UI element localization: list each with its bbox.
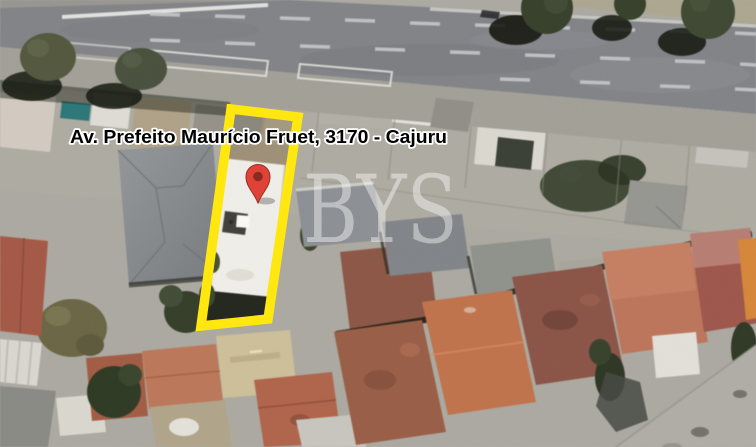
satellite-map-canvas[interactable]: BYS Av. Prefeito Maurício Fruet, 3170 - …	[0, 0, 756, 447]
address-label: Av. Prefeito Maurício Fruet, 3170 - Caju…	[70, 126, 447, 147]
watermark-text: BYS	[303, 156, 458, 265]
pin-inner-dot	[253, 172, 263, 182]
satellite-map-view[interactable]: BYS Av. Prefeito Maurício Fruet, 3170 - …	[0, 0, 756, 447]
